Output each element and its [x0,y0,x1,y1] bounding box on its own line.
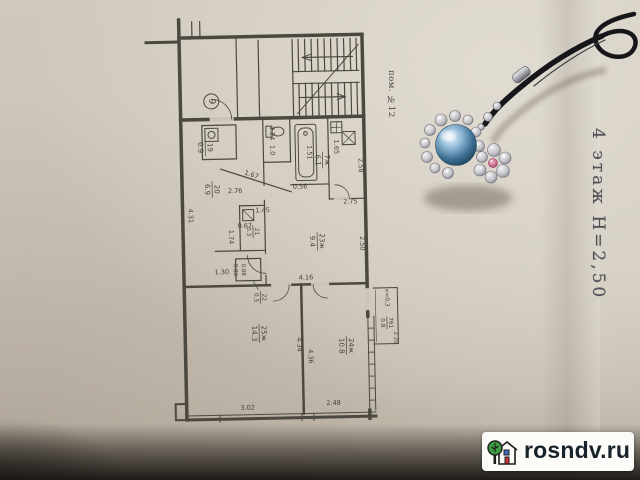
dim-label: 2.20 [392,331,398,344]
room-number: 21 [253,228,259,236]
dim-label: 2.58 [357,158,365,173]
room-number: 24ж [347,338,355,354]
balcony-label: 7б1 0.8 [379,317,393,329]
dim-label: 4.31 [187,209,195,224]
room-number: 19 [206,143,214,152]
room-number: 25ж [260,326,268,342]
room-number: 7б1 [387,317,393,328]
dim-label: 1.30 [215,268,230,276]
dim-label: 0.56 [293,182,308,190]
dim-label: 4.16 [299,273,314,281]
sink-icon [205,128,218,141]
photo-corner-shadow [0,370,200,480]
house-window-icon [504,450,509,455]
dim-label: 1.24 [268,126,276,141]
room-number: 22 [260,294,266,302]
floor-stamp-label: 4 этаж Н=2,50 [588,128,608,358]
circled-number: 9 [204,94,219,109]
dim-label: 1.65 [332,139,340,154]
photo-of-floor-plan: 9 [0,0,640,480]
room-area: 0.8 [379,318,385,328]
dim-label: 0.80 [232,264,238,277]
dim-label: 1.51 [305,145,313,160]
blue-pearl-bead [436,125,477,166]
stairwell [146,16,364,121]
vent-icon [342,131,355,144]
room-label: 24ж 10.8 [337,336,355,354]
room-area: 10.8 [337,338,345,354]
dim-label: 2.76 [228,187,243,195]
room-label: 25ж 14.3 [250,324,268,342]
premise-number-label: пом. №12 [386,70,396,130]
dim-label: 1.45 [255,206,270,214]
watermark-badge: rosndv.ru [482,432,634,471]
room-label: 22 0.5 [252,291,266,303]
room-area: 9.4 [308,236,316,248]
room-area: 14.3 [250,326,258,342]
dim-label: 1.0 [268,145,276,156]
tree-icon [488,441,502,464]
watermark-text: rosndv.ru [524,439,630,464]
room-area: 6.9 [203,184,211,195]
interior-walls [181,116,370,416]
room-number: 23ж [318,233,326,249]
balcony-coef-label: к=0,3 [383,289,389,307]
charm-shadow [424,185,512,211]
dim-label: 0.88 [240,264,246,277]
pink-gem [489,159,498,168]
heater-icon [243,210,254,221]
room-number: 20 [213,185,221,194]
strap-cord [485,14,636,124]
dim-label: 4.36 [307,349,315,364]
dim-label: 1.74 [227,230,235,245]
room-number: 7ж [323,155,331,167]
room-label: 20 6.9 [203,181,221,197]
room-area: 6.1 [313,155,321,166]
room-label: 23ж 9.4 [308,232,326,250]
stove-icon [331,122,342,133]
house-door-icon [505,457,509,464]
dim-label: 3.02 [240,404,255,412]
room-area: 0.9 [196,142,204,153]
room-area: 0.5 [252,293,258,303]
dim-label: 0.67 [238,222,253,230]
dim-label: 2.50 [358,236,366,251]
dim-label: 2.48 [326,399,341,407]
dim-label: 2.75 [343,197,358,205]
dim-label: 4.34 [295,337,303,352]
watermark-logo [487,437,519,467]
